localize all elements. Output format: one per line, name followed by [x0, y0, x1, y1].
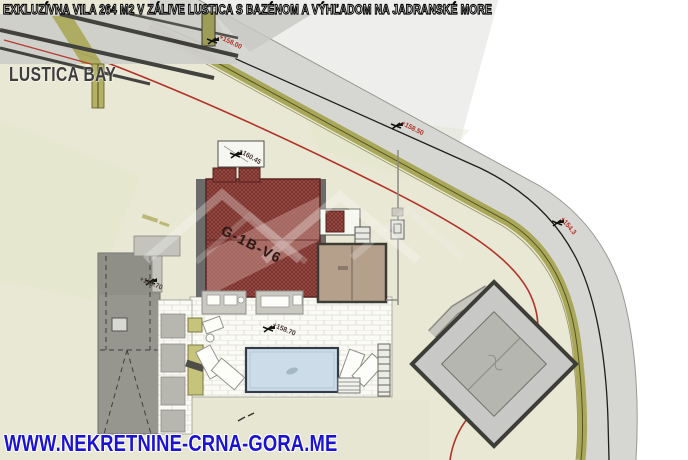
- garden-stairs: [378, 344, 390, 396]
- planter: [188, 318, 202, 332]
- west-wall: [196, 179, 206, 297]
- website-watermark: WWW.NEKRETNINE-CRNA-GORA.ME: [4, 430, 337, 457]
- pool: [246, 348, 338, 392]
- development-name-watermark: LUSTICA BAY: [9, 64, 116, 87]
- flat-deck-roof: [318, 244, 386, 302]
- listing-title: EXKLUZÍVNA VILA 264 M2 V ZÁLIVE LUSTICA …: [3, 2, 492, 17]
- site-plan-screenshot: EXKLUZÍVNA VILA 264 M2 V ZÁLIVE LUSTICA …: [0, 0, 688, 460]
- roof-planters: [213, 168, 260, 182]
